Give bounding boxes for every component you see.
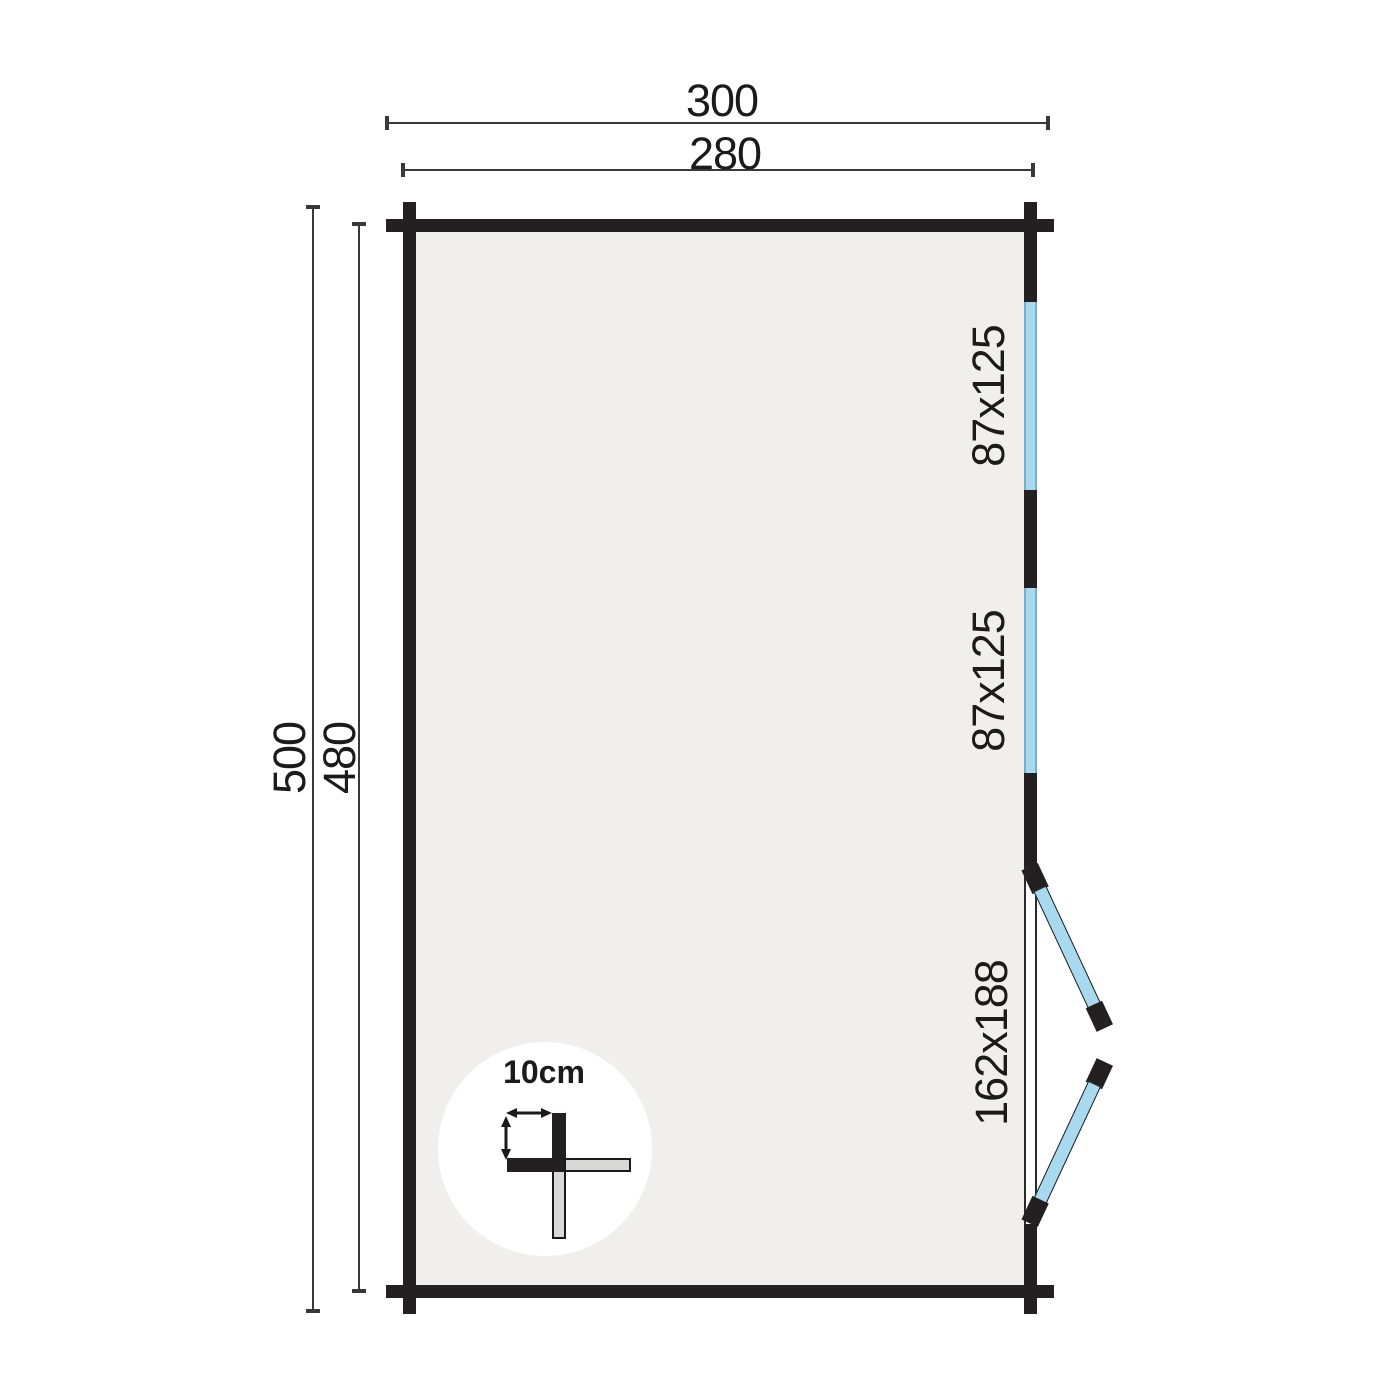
dim-width-outer-label: 300	[622, 78, 822, 124]
dim-height-outer-label: 500	[267, 658, 313, 858]
window-top	[1024, 302, 1037, 490]
dim-tick	[306, 1309, 320, 1313]
window-middle	[1024, 588, 1037, 773]
window-top-size-label: 87x125	[966, 296, 1012, 496]
height-arrow-icon	[498, 1115, 514, 1161]
wall-top	[386, 219, 1054, 232]
door-leaf-glass	[1033, 886, 1101, 1010]
wall-bottom	[386, 1285, 1054, 1298]
wall-thickness-label: 10cm	[444, 1052, 644, 1092]
detail-log-horizontal-outline	[564, 1158, 631, 1172]
dim-tick	[1046, 116, 1050, 130]
dim-tick	[306, 205, 320, 209]
dim-tick	[385, 116, 389, 130]
floor-plan-diagram: 300 280 500 480 87x125 87x125 162x188 10…	[0, 0, 1400, 1400]
window-middle-size-label: 87x125	[966, 581, 1012, 781]
wall-right-segment-above-door	[1024, 773, 1037, 868]
dim-tick	[1031, 163, 1035, 177]
detail-log-vertical-outline	[552, 1170, 566, 1239]
dim-tick	[401, 163, 405, 177]
wall-left	[403, 202, 416, 1314]
dim-tick	[352, 222, 366, 226]
dim-height-inner-label: 480	[317, 658, 363, 858]
wall-right-segment-bottom	[1024, 1224, 1037, 1314]
door-opening	[1024, 868, 1037, 1224]
wall-right-segment-top	[1024, 202, 1037, 302]
dim-width-inner-label: 280	[625, 131, 825, 177]
door-leaf-glass	[1033, 1081, 1101, 1205]
door-leaf-end-block	[1086, 1001, 1113, 1032]
door-size-label: 162x188	[969, 943, 1015, 1143]
detail-log-horizontal-solid	[507, 1158, 566, 1172]
dim-tick	[352, 1289, 366, 1293]
wall-right-segment-between-windows	[1024, 490, 1037, 588]
